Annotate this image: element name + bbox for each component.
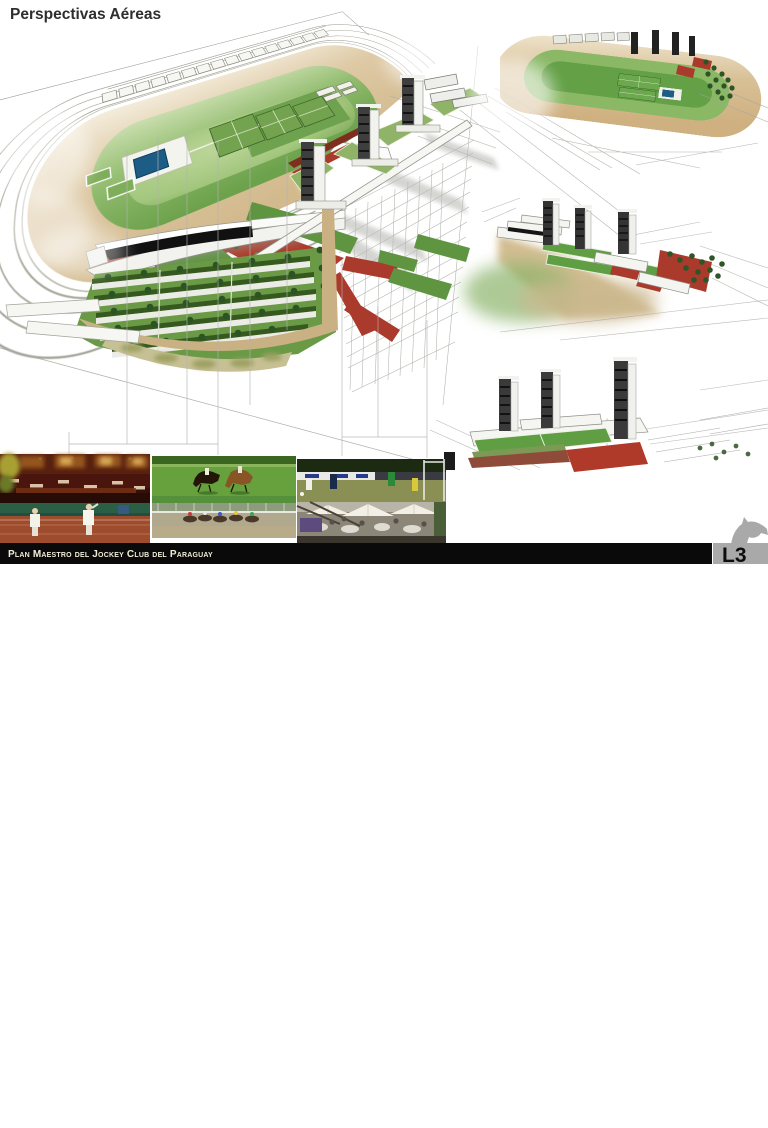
svg-text:L3: L3	[722, 544, 747, 564]
svg-text:Perspectivas Aéreas: Perspectivas Aéreas	[10, 6, 161, 23]
svg-text:Plan Maestro del Jockey Club d: Plan Maestro del Jockey Club del Paragua…	[8, 549, 213, 560]
